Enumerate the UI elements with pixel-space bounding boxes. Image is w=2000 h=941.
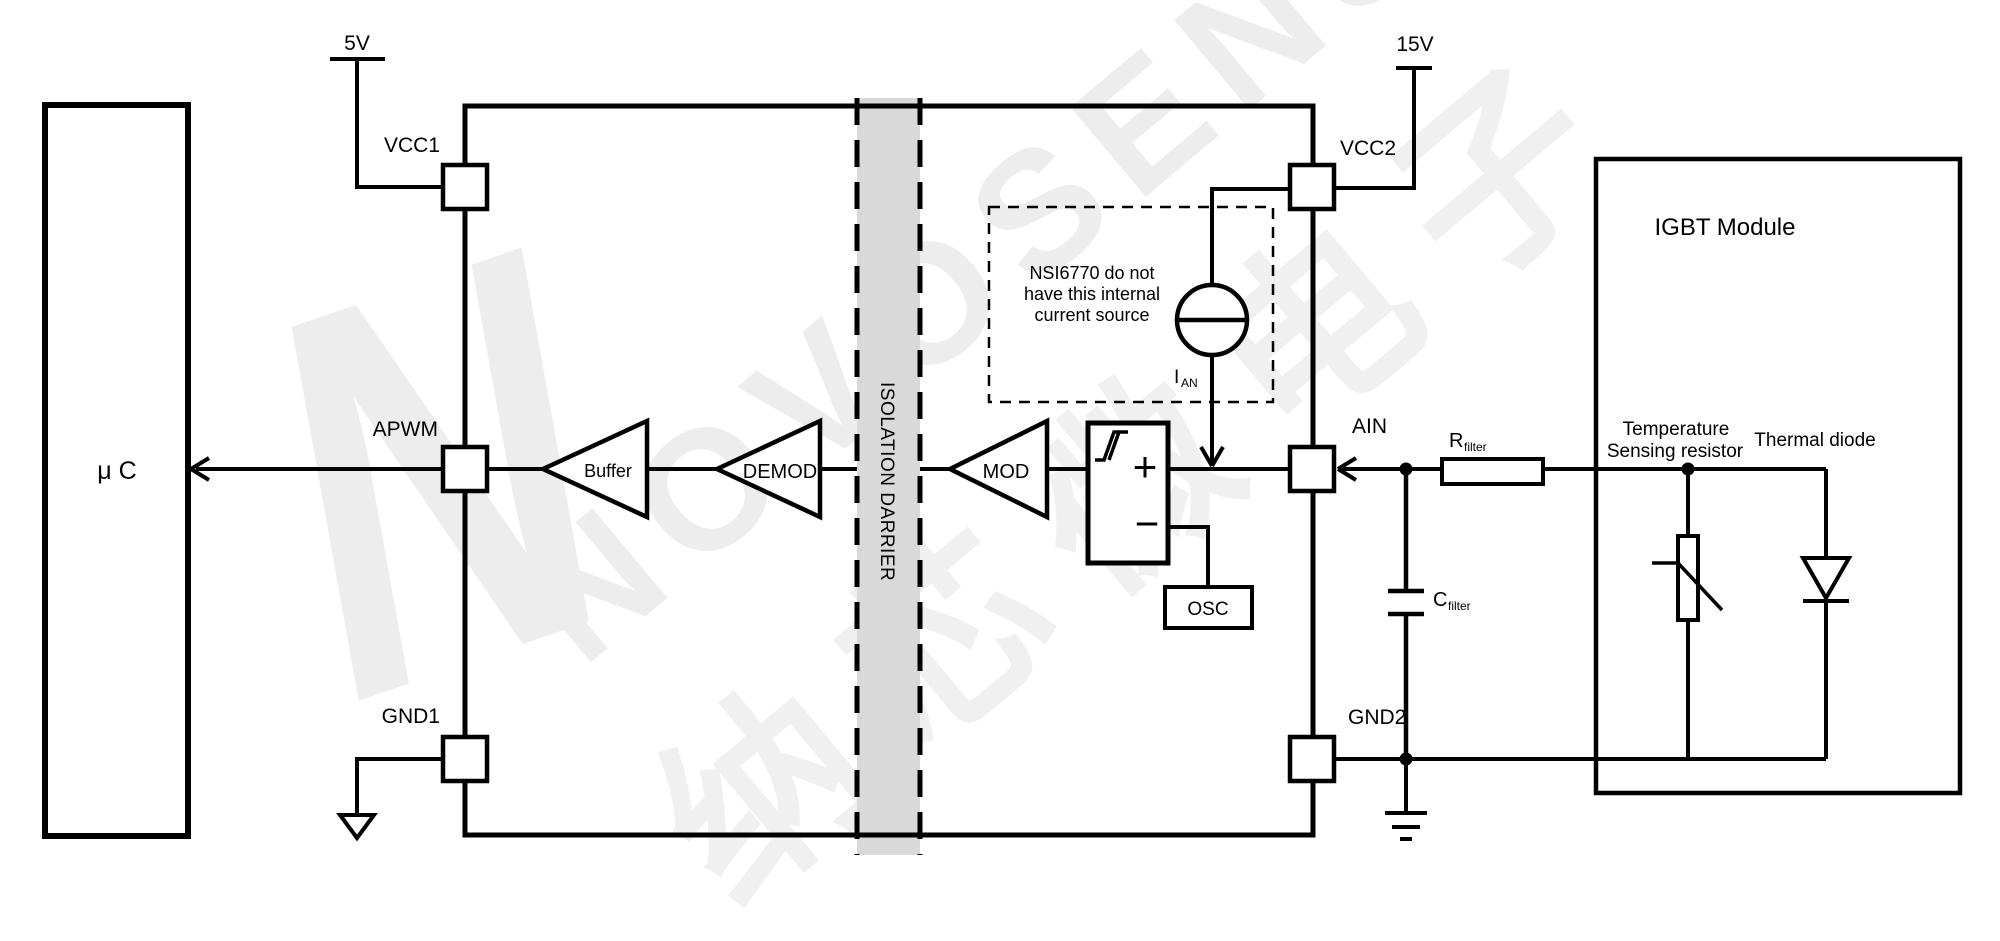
- pin-label-vcc1: VCC1: [384, 134, 440, 157]
- pin-vcc2: [1290, 165, 1334, 209]
- gnd1-ground-icon: [340, 815, 374, 838]
- igbt-module-box: [1596, 159, 1960, 793]
- note-line1: NSI6770 do not: [1029, 263, 1154, 283]
- mod-label: MOD: [983, 461, 1030, 483]
- osc-wire: [1168, 527, 1208, 587]
- junction-dot: [1682, 463, 1695, 476]
- note-line2: have this internal: [1024, 284, 1160, 304]
- junction-dot: [1400, 463, 1413, 476]
- comparator-plus-label: +: [1133, 443, 1158, 490]
- ian-label: I: [1174, 367, 1179, 388]
- igbt-module-title: IGBT Module: [1655, 214, 1796, 241]
- isolation-barrier-label: ISOLATION DARRIER: [876, 382, 897, 581]
- thermal-diode-label: Thermal diode: [1754, 430, 1875, 451]
- ian-subscript-label: AN: [1181, 376, 1198, 390]
- pin-ain: [1290, 447, 1334, 491]
- pin-gnd1: [443, 737, 487, 781]
- note-line3: current source: [1034, 305, 1149, 325]
- demod-label: DEMOD: [743, 461, 817, 483]
- 15v-supply-wire: [1334, 68, 1432, 188]
- supply-5v-label: 5V: [344, 32, 370, 55]
- pin-label-gnd1: GND1: [382, 705, 440, 728]
- pin-gnd2: [1290, 737, 1334, 781]
- circuit-diagram: 5V 15V μ C VCC1 APWM GND1 VCC2 AIN GND2 …: [0, 0, 2000, 881]
- pin-label-apwm: APWM: [373, 418, 438, 441]
- 5v-supply-wire: [330, 59, 443, 187]
- gnd2-earth-icon: [1385, 759, 1427, 839]
- ain-sense-wire: [1338, 469, 1826, 558]
- microcontroller-label: μ C: [97, 457, 136, 485]
- pin-vcc1: [443, 165, 487, 209]
- thermal-diode-icon: [1803, 558, 1849, 598]
- pin-label-vcc2: VCC2: [1340, 137, 1396, 160]
- thermistor-label-line1: Temperature: [1623, 419, 1730, 440]
- supply-15v-label: 15V: [1396, 33, 1433, 56]
- r-filter-label: R: [1449, 430, 1463, 452]
- thermistor-label-line2: Sensing resistor: [1607, 441, 1744, 462]
- c-filter-subscript-label: filter: [1448, 599, 1471, 613]
- osc-label: OSC: [1187, 599, 1228, 620]
- pin-label-ain: AIN: [1352, 415, 1387, 438]
- thermistor-body-icon: [1678, 536, 1698, 620]
- pin-apwm: [443, 447, 487, 491]
- buffer-label: Buffer: [584, 461, 632, 481]
- comparator-minus-label: −: [1135, 500, 1160, 547]
- gnd1-wire: [357, 759, 443, 815]
- r-filter-resistor-icon: [1442, 459, 1543, 484]
- pin-label-gnd2: GND2: [1348, 706, 1406, 729]
- c-filter-label: C: [1433, 589, 1447, 611]
- r-filter-subscript-label: filter: [1464, 440, 1487, 454]
- junction-dot: [1400, 753, 1413, 766]
